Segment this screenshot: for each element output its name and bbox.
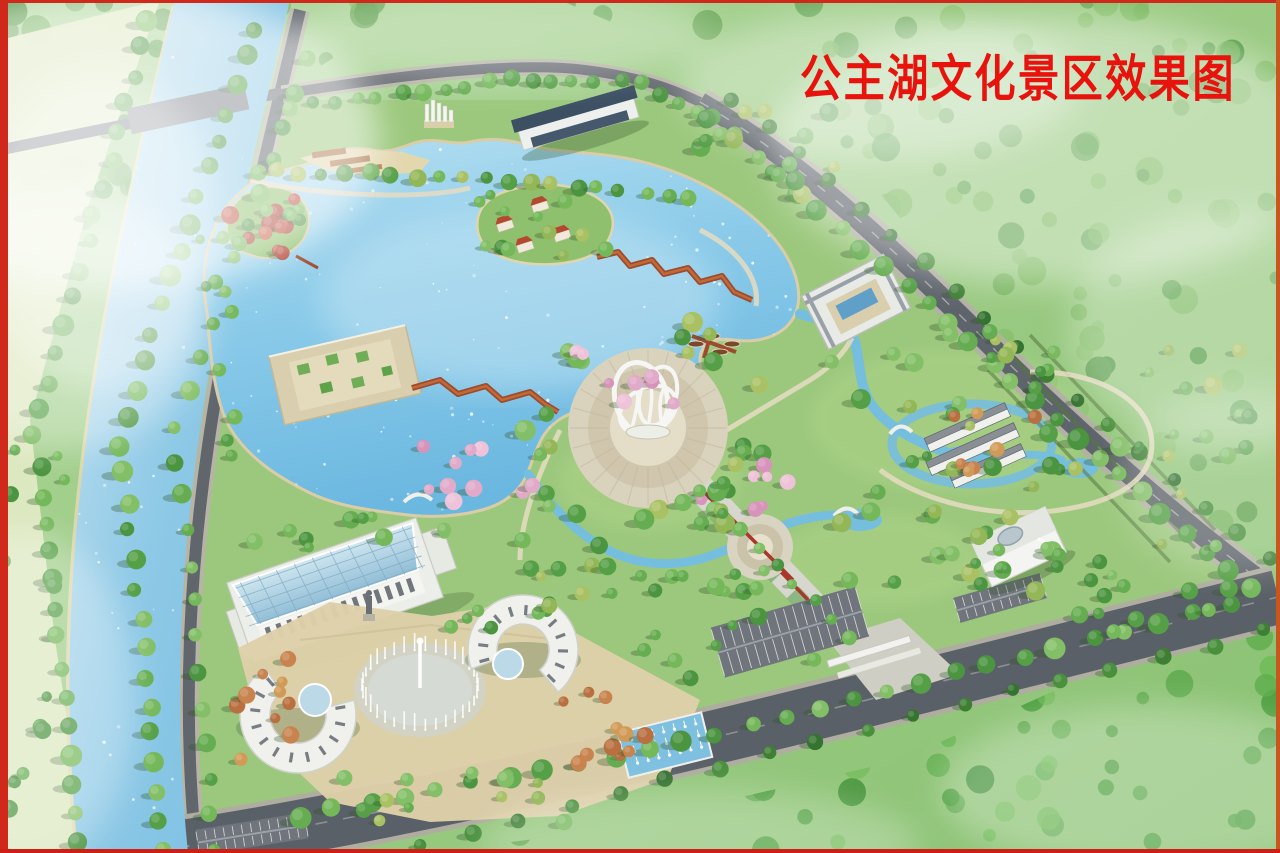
scenic-area-rendering: 公主湖文化景区效果图	[0, 0, 1280, 853]
image-title: 公主湖文化景区效果图	[800, 49, 1236, 108]
rendering-canvas: 公主湖文化景区效果图	[0, 0, 1280, 853]
